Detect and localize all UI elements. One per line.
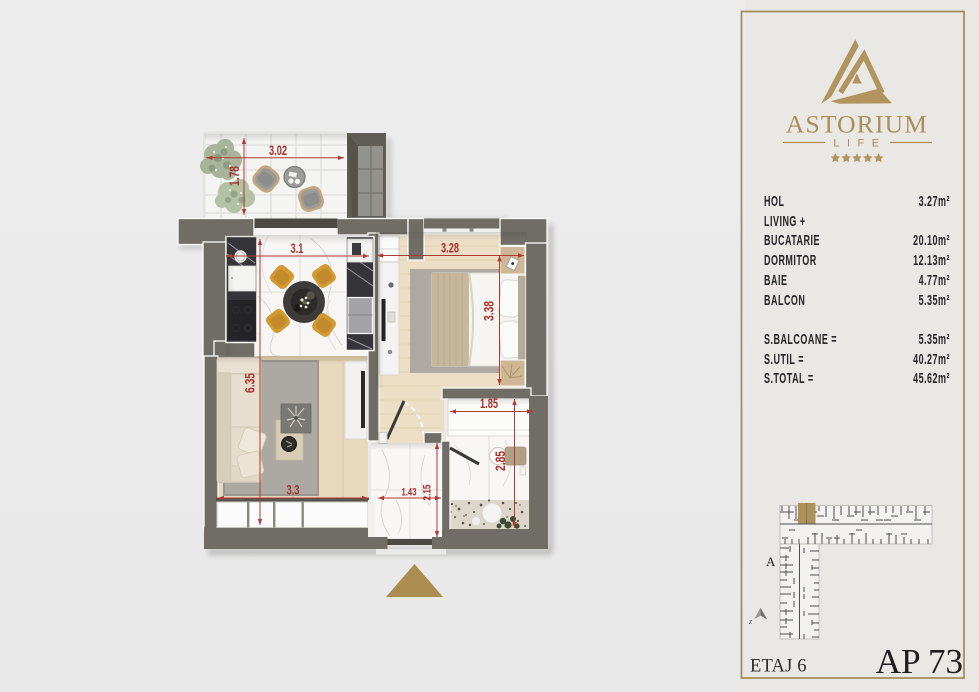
svg-text:3.28: 3.28 — [441, 241, 459, 256]
svg-text:BUCATARIE: BUCATARIE — [764, 232, 820, 249]
svg-text:A: A — [766, 554, 776, 569]
svg-text:1.85: 1.85 — [480, 396, 498, 411]
svg-text:DORMITOR: DORMITOR — [764, 252, 817, 269]
svg-text:3.02: 3.02 — [269, 143, 287, 158]
svg-text:3.38: 3.38 — [482, 301, 497, 321]
svg-text:1.43: 1.43 — [402, 487, 417, 499]
svg-text:40.27m²: 40.27m² — [913, 351, 950, 368]
svg-text:S.TOTAL =: S.TOTAL = — [764, 370, 814, 387]
svg-text:BALCON: BALCON — [764, 292, 805, 309]
svg-text:HOL: HOL — [764, 193, 784, 210]
svg-text:5.35m²: 5.35m² — [919, 292, 950, 309]
svg-text:3.3: 3.3 — [287, 483, 300, 498]
svg-text:S.BALCOANE =: S.BALCOANE = — [764, 331, 837, 348]
svg-text:4.77m²: 4.77m² — [919, 272, 950, 289]
svg-text:ETAJ 6: ETAJ 6 — [750, 657, 807, 677]
svg-text:6.35: 6.35 — [243, 373, 258, 393]
svg-text:2.85: 2.85 — [493, 451, 508, 471]
svg-text:5.35m²: 5.35m² — [919, 331, 950, 348]
svg-text:ASTORIUM: ASTORIUM — [786, 110, 928, 139]
svg-text:12.13m²: 12.13m² — [913, 252, 950, 269]
svg-text:LIFE: LIFE — [833, 138, 886, 150]
svg-text:2.15: 2.15 — [422, 485, 434, 501]
svg-text:1.78: 1.78 — [227, 166, 242, 186]
svg-text:45.62m²: 45.62m² — [913, 370, 950, 387]
svg-text:S.UTIL =: S.UTIL = — [764, 351, 804, 368]
svg-text:AP 73: AP 73 — [876, 642, 963, 681]
svg-text:20.10m²: 20.10m² — [913, 232, 950, 249]
svg-text:LIVING +: LIVING + — [764, 213, 806, 230]
svg-text:BAIE: BAIE — [764, 272, 787, 289]
svg-text:3.27m²: 3.27m² — [919, 193, 950, 210]
svg-text:3.1: 3.1 — [291, 241, 304, 256]
